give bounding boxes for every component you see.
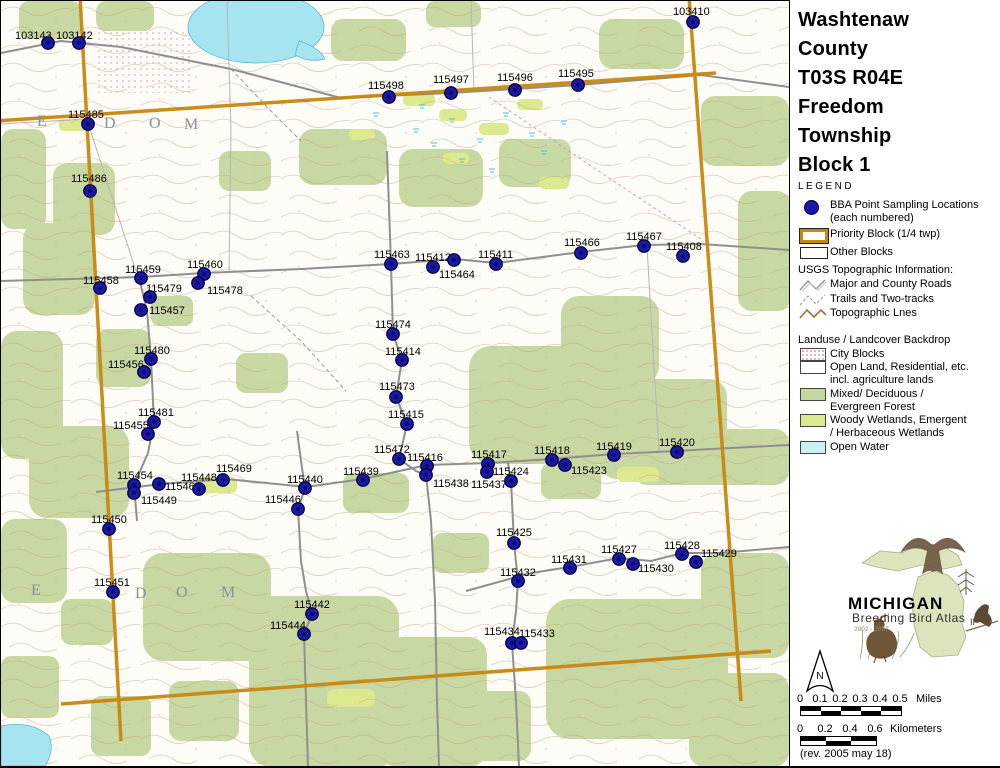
bba-point-core (675, 450, 679, 454)
bba-point-core (519, 641, 523, 645)
topo-line-icon (798, 307, 830, 321)
bba-point-core (77, 41, 81, 45)
title-line: T03S R04E (798, 64, 909, 93)
point-label-115423: 115423 (571, 465, 607, 477)
trail-line-icon (798, 293, 830, 307)
title-line: County (798, 35, 909, 64)
legend-label: Mixed/ Deciduous / Evergreen Forest (830, 388, 924, 414)
map-canvas[interactable]: EDOMEEDOM 103143103142103410115485115486… (1, 1, 789, 767)
legend-item-topo-lines: Topographic Lnes (798, 307, 998, 321)
bba-point-core (512, 541, 516, 545)
point-label-115430: 115430 (638, 563, 674, 575)
scale-tick: 0.3 (852, 693, 867, 705)
point-label-115457: 115457 (149, 305, 185, 317)
bba-point-core (485, 470, 489, 474)
bba-point-core (680, 552, 684, 556)
legend-label: Major and County Roads (830, 278, 952, 291)
bba-point-core (576, 83, 580, 87)
bba-point-core (397, 457, 401, 461)
legend-panel: Washtenaw County T03S R04E Freedom Towns… (790, 0, 1000, 768)
bba-point-symbol (804, 200, 819, 215)
legend-label: Trails and Two-tracks (830, 293, 934, 306)
city-blocks-swatch (800, 348, 826, 361)
bba-point-core (405, 422, 409, 426)
point-label-115469: 115469 (216, 463, 252, 475)
bba-point-core (152, 420, 156, 424)
kilometers-bar (800, 736, 877, 746)
bba-point-core (449, 91, 453, 95)
map-title: Washtenaw County T03S R04E Freedom Towns… (798, 6, 909, 180)
bba-point-core (612, 453, 616, 457)
wetlands-swatch (800, 414, 826, 427)
scale-tick: 0 (797, 723, 803, 735)
point-label-115498: 115498 (368, 80, 404, 92)
bba-point-core (494, 262, 498, 266)
bba-point-core (452, 258, 456, 262)
title-line: Township (798, 122, 909, 151)
legend-item-bba-points: BBA Point Sampling Locations (each numbe… (798, 199, 998, 225)
scale-tick: 0.6 (867, 723, 882, 735)
legend-item-trails: Trails and Two-tracks (798, 293, 998, 307)
township-letter: D (104, 115, 116, 132)
bba-point-core (132, 491, 136, 495)
scale-tick: 0.2 (832, 693, 847, 705)
logo-numeral: II (970, 617, 975, 627)
scale-tick: 0.4 (872, 693, 887, 705)
usgs-header: USGS Topographic Information: (798, 264, 953, 277)
bba-point-core (568, 566, 572, 570)
forest-swatch (800, 388, 826, 401)
bba-point-core (46, 41, 50, 45)
bba-point-core (424, 473, 428, 477)
township-letter: E (31, 582, 41, 599)
page: EDOMEEDOM 103143103142103410115485115486… (0, 0, 1000, 768)
point-label-115497: 115497 (433, 74, 469, 86)
map-area: EDOMEEDOM 103143103142103410115485115486… (0, 0, 790, 768)
legend-item-forest: Mixed/ Deciduous / Evergreen Forest (798, 388, 998, 414)
open-water-swatch (800, 441, 826, 454)
bba-point-core (86, 122, 90, 126)
bba-point-core (400, 358, 404, 362)
bba-point-core (303, 486, 307, 490)
point-label-115438: 115438 (433, 478, 469, 490)
title-line: Washtenaw (798, 6, 909, 35)
scale-tick: 0 (797, 693, 803, 705)
legend-item-city-blocks: City Blocks (798, 348, 998, 361)
road-line-icon (798, 278, 830, 292)
bba-point-core (302, 632, 306, 636)
bba-point-core (146, 432, 150, 436)
landuse-header: Landuse / Landcover Backdrop (798, 334, 950, 347)
legend-label: Priority Block (1/4 twp) (830, 228, 940, 241)
scale-tick: 0.1 (812, 693, 827, 705)
bba-point-core (394, 395, 398, 399)
legend-item-major-roads: Major and County Roads (798, 278, 998, 292)
bba-point-core (513, 88, 517, 92)
bba-point-core (550, 458, 554, 462)
bba-point-core (196, 281, 200, 285)
township-letter: E (37, 113, 47, 130)
scale-tick: 0.2 (817, 723, 832, 735)
scale-tick: 0.4 (842, 723, 857, 735)
legend-label: Open Water (830, 441, 889, 454)
legend-item-wetlands: Woody Wetlands, Emergent / Herbaceous We… (798, 414, 998, 440)
point-label-115429: 115429 (701, 548, 737, 560)
scale-unit: Kilometers (890, 723, 942, 735)
bba-point-core (202, 272, 206, 276)
legend-item-priority-block: Priority Block (1/4 twp) (798, 228, 998, 243)
bba-point-core (631, 562, 635, 566)
bba-point-core (642, 244, 646, 248)
point-label-115478: 115478 (207, 285, 243, 297)
point-label-115472: 115472 (374, 444, 410, 456)
township-letter: M (184, 116, 198, 133)
title-line: Freedom (798, 93, 909, 122)
bba-point-core (617, 557, 621, 561)
point-label-115464: 115464 (439, 269, 475, 281)
pine-sprig-icon (958, 569, 974, 595)
point-label-115486: 115486 (71, 173, 107, 185)
point-label-115449: 115449 (141, 495, 177, 507)
point-label-115495: 115495 (558, 68, 594, 80)
bba-point-core (510, 641, 514, 645)
township-letter: O (149, 115, 161, 132)
bba-point-core (142, 370, 146, 374)
township-letter: D (135, 585, 147, 602)
bba-point-core (139, 276, 143, 280)
point-label-115437: 115437 (471, 479, 507, 491)
bba-point-core (391, 332, 395, 336)
city-blocks-texture (96, 31, 191, 93)
legend-item-open-land: Open Land, Residential, etc. incl. agric… (798, 361, 998, 387)
bba-point-core (139, 308, 143, 312)
township-letter: O (176, 584, 188, 601)
bba-point-core (361, 478, 365, 482)
bba-point-core (431, 265, 435, 269)
michigan-bba-logo: MICHIGAN Breeding Bird Atlas 2002 - 2007… (840, 525, 1000, 665)
legend-label: Woody Wetlands, Emergent / Herbaceous We… (830, 414, 967, 440)
bba-point-core (157, 482, 161, 486)
bba-point-core (148, 295, 152, 299)
title-line: Block 1 (798, 151, 909, 180)
bba-point-core (310, 612, 314, 616)
revision-note: (rev. 2005 may 18) (800, 748, 892, 761)
bba-point-core (221, 478, 225, 482)
other-blocks-symbol (800, 247, 828, 259)
scale-tick: 0.5 (892, 693, 907, 705)
logo-subtitle: Breeding Bird Atlas (852, 611, 965, 625)
bba-point-core (111, 590, 115, 594)
north-label: N (816, 671, 823, 682)
north-arrow: N (800, 648, 840, 694)
bba-point-core (579, 251, 583, 255)
bba-point-core (389, 262, 393, 266)
bba-point-core (509, 479, 513, 483)
bba-point-core (425, 464, 429, 468)
legend-item-other-blocks: Other Blocks (798, 246, 998, 259)
point-label-115434: 115434 (484, 626, 520, 638)
bba-point-core (88, 189, 92, 193)
bba-point-core (516, 579, 520, 583)
point-label-115496: 115496 (497, 72, 533, 84)
logo-years: 2002 - 2007 (854, 626, 889, 633)
bba-point-core (681, 254, 685, 258)
bba-point-core (197, 487, 201, 491)
scale-unit: Miles (916, 693, 942, 705)
miles-bar (800, 706, 902, 716)
bba-point-core (563, 463, 567, 467)
legend-label: BBA Point Sampling Locations (each numbe… (830, 199, 979, 225)
legend-label: Open Land, Residential, etc. incl. agric… (830, 361, 969, 387)
bba-point-core (387, 95, 391, 99)
township-letter: M (221, 584, 235, 601)
bba-point-core (694, 560, 698, 564)
legend-label: Other Blocks (830, 246, 893, 259)
bba-point-core (691, 20, 695, 24)
legend-label: Topographic Lnes (830, 307, 917, 320)
priority-block-symbol (800, 229, 828, 243)
bba-point-core (107, 527, 111, 531)
legend-item-open-water: Open Water (798, 441, 998, 454)
bba-point-core (98, 286, 102, 290)
legend-label: City Blocks (830, 348, 884, 361)
bba-point-core (149, 357, 153, 361)
legend-heading: LEGEND (798, 181, 854, 192)
bba-point-core (296, 507, 300, 511)
open-land-swatch (800, 361, 826, 374)
